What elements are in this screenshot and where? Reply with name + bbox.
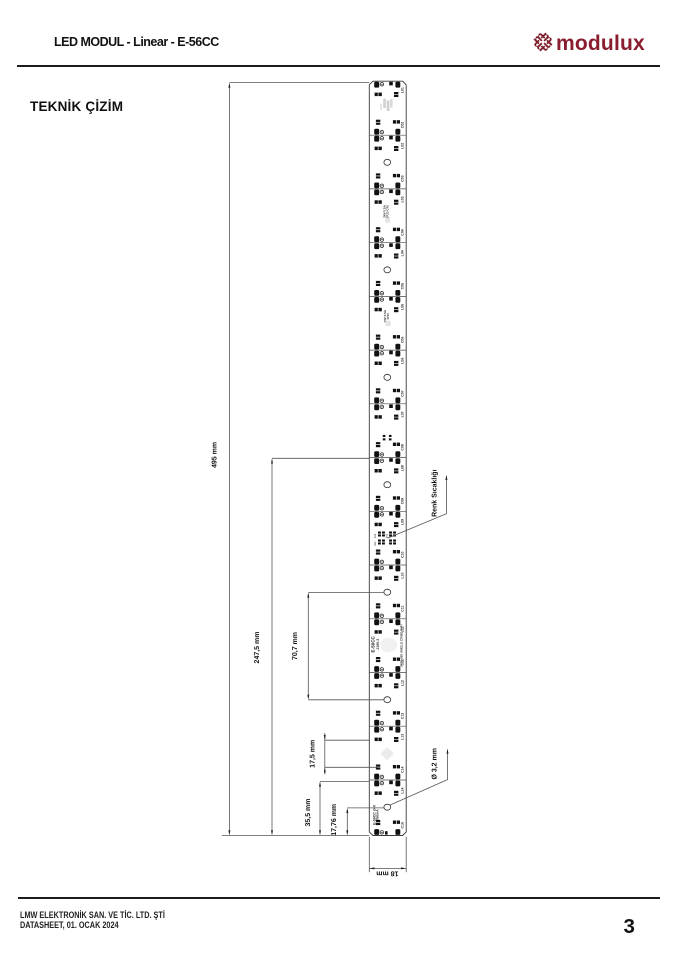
svg-text:C13: C13 [400, 713, 404, 719]
svg-text:C06: C06 [400, 337, 404, 343]
svg-text:C14: C14 [400, 767, 404, 773]
svg-text:L02: L02 [400, 143, 404, 149]
svg-text:18 mm: 18 mm [376, 870, 398, 877]
svg-text:C03: C03 [400, 175, 404, 181]
svg-text:L12: L12 [400, 680, 404, 686]
svg-text:C15: C15 [400, 822, 404, 828]
svg-text:17,5 mm: 17,5 mm [310, 740, 317, 768]
svg-text:C05: C05 [400, 283, 404, 289]
svg-text:L09: L09 [400, 519, 404, 525]
svg-text:C04: C04 [400, 229, 404, 235]
svg-text:Renk Sıcaklığı: Renk Sıcaklığı [430, 469, 438, 517]
svg-text:L10: L10 [400, 573, 404, 579]
svg-text:350mA: 350mA [375, 809, 379, 821]
svg-text:IP20 CRI: IP20 CRI [385, 205, 389, 217]
svg-text:L05: L05 [400, 304, 404, 310]
svg-text:17,76 mm: 17,76 mm [331, 804, 338, 836]
svg-text:L13: L13 [400, 734, 404, 740]
svg-text:C07: C07 [400, 390, 404, 396]
svg-text:L08: L08 [400, 465, 404, 471]
svg-text:L07: L07 [400, 411, 404, 417]
svg-text:35,5 mm: 35,5 mm [305, 798, 312, 826]
svg-text:L14: L14 [400, 788, 404, 794]
svg-text:495 mm: 495 mm [212, 442, 219, 468]
svg-text:247,5 mm: 247,5 mm [254, 632, 261, 664]
svg-text:Ø 3,2 mm: Ø 3,2 mm [431, 748, 439, 780]
svg-text:C11: C11 [400, 605, 404, 611]
svg-text:L03: L03 [400, 196, 404, 202]
svg-text:C10: C10 [400, 552, 404, 558]
svg-text:C09: C09 [400, 498, 404, 504]
svg-text:L06: L06 [400, 358, 404, 364]
svg-text:IP20: IP20 [386, 313, 390, 320]
svg-text:L01: L01 [400, 87, 404, 93]
svg-text:101: 101 [385, 533, 388, 538]
svg-text:L04: L04 [400, 250, 404, 256]
svg-text:101: 101 [374, 533, 377, 538]
svg-text:70,7 mm: 70,7 mm [292, 632, 299, 660]
svg-text:101: 101 [374, 541, 377, 546]
svg-text:C08: C08 [400, 444, 404, 450]
svg-text:C02: C02 [400, 122, 404, 128]
svg-text:J195-3: J195-3 [376, 639, 380, 650]
svg-text:IP20 360 ANGLE CRI80 GMY: IP20 360 ANGLE CRI80 GMY [399, 623, 403, 667]
